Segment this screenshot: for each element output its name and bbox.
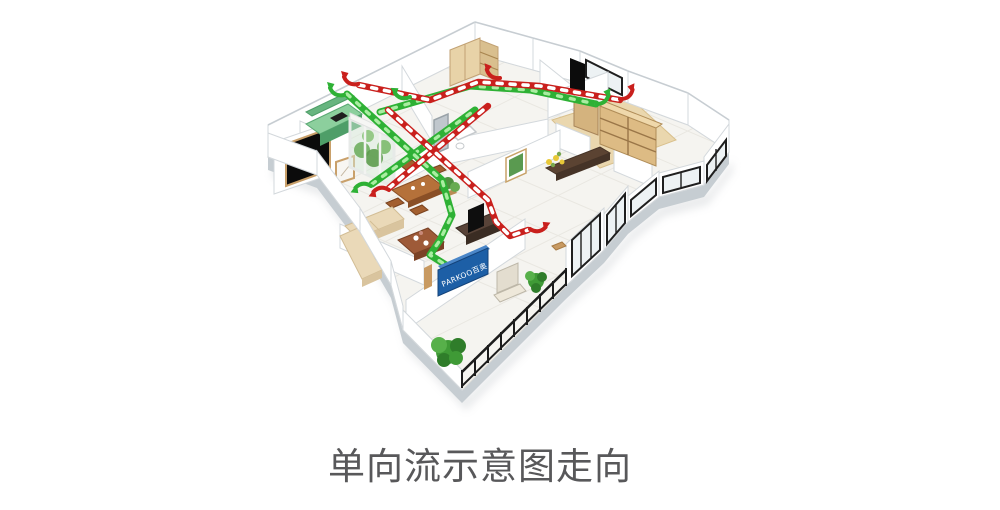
caption-title: 单向流示意图走向 xyxy=(328,436,688,490)
exhaust-arrow-kitchen xyxy=(341,71,358,84)
toilet xyxy=(456,143,464,149)
ventilation-flow-diagram: PARKOO百奥 单向流示意图走向 xyxy=(0,0,1000,510)
bedroom-doorframe xyxy=(424,264,432,290)
apartment-floorplan-3d: PARKOO百奥 xyxy=(0,0,1000,510)
